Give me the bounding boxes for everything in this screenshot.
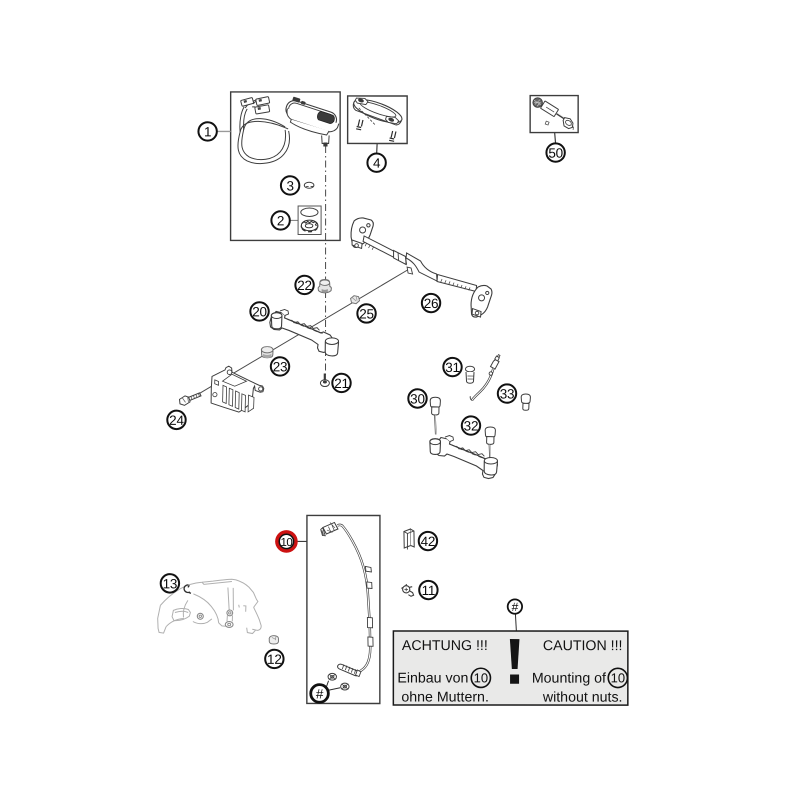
svg-text:10: 10: [611, 670, 625, 685]
svg-text:50: 50: [548, 146, 563, 161]
svg-text:30: 30: [410, 392, 425, 407]
svg-text:20: 20: [252, 304, 267, 319]
svg-text:26: 26: [424, 296, 439, 311]
svg-text:33: 33: [500, 387, 515, 402]
svg-text:without nuts.: without nuts.: [542, 690, 623, 706]
svg-text:Mounting of: Mounting of: [532, 671, 606, 687]
svg-text:1: 1: [204, 124, 211, 139]
svg-text:42: 42: [421, 534, 436, 549]
svg-text:21: 21: [334, 376, 349, 391]
svg-text:10: 10: [281, 537, 293, 549]
svg-text:#: #: [316, 686, 324, 701]
svg-text:CAUTION !!!: CAUTION !!!: [543, 638, 623, 654]
svg-text:31: 31: [445, 360, 460, 375]
svg-text:ACHTUNG !!!: ACHTUNG !!!: [402, 638, 488, 654]
svg-text:#: #: [512, 600, 519, 614]
svg-text:4: 4: [373, 156, 381, 171]
svg-text:10: 10: [474, 670, 488, 685]
svg-text:23: 23: [273, 359, 288, 374]
svg-text:25: 25: [359, 306, 374, 321]
svg-text:13: 13: [163, 576, 178, 591]
svg-text:Einbau von: Einbau von: [397, 670, 468, 686]
svg-text:ohne Muttern.: ohne Muttern.: [401, 690, 489, 706]
svg-text:32: 32: [464, 419, 479, 434]
svg-text:3: 3: [286, 178, 293, 193]
svg-text:12: 12: [267, 652, 282, 667]
svg-text:24: 24: [169, 413, 184, 428]
svg-text:2: 2: [277, 213, 284, 228]
svg-text:22: 22: [297, 278, 312, 293]
svg-text:11: 11: [422, 583, 436, 598]
